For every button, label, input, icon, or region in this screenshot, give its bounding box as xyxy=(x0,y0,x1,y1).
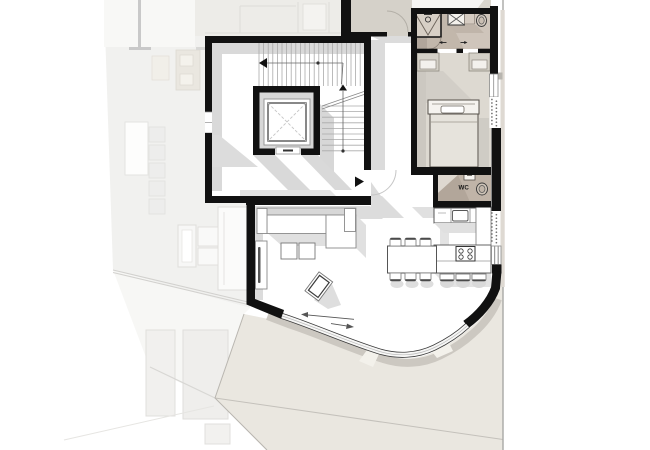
svg-text:WC: WC xyxy=(459,185,470,192)
